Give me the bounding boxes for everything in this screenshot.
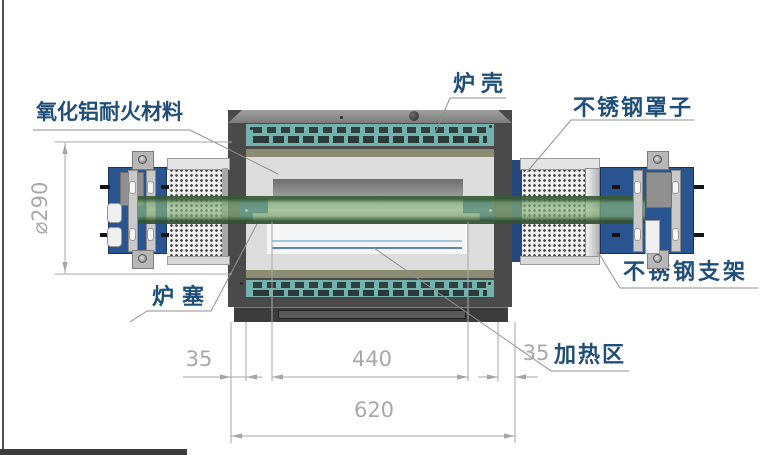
flange-piece <box>645 220 660 254</box>
clamp-slot <box>129 228 136 241</box>
label-alumina-refractory: 氧化铝耐火材料 <box>36 101 183 124</box>
furnace-diagram: 氧化铝耐火材料 炉壳 不锈钢罩子 炉塞 不锈钢支架 加热区 ⌀290 35 44… <box>0 0 760 455</box>
cover-bottom-edge <box>520 256 600 265</box>
gasket-strip-bottom <box>246 270 494 278</box>
label-furnace-shell: 炉壳 <box>453 72 509 96</box>
chamber-cavity <box>267 224 467 254</box>
dim-left-35: 35 <box>184 347 214 371</box>
base-slot <box>278 310 466 319</box>
vent-slots-row <box>253 282 487 288</box>
clamp-screw <box>653 254 662 263</box>
clamp-wedge-right <box>646 172 672 208</box>
vent-slots-row <box>253 136 487 143</box>
clamp-slot <box>129 181 136 194</box>
chamber-liner-line <box>272 247 462 249</box>
window-bottom-strip <box>0 449 187 455</box>
top-port-hole <box>409 111 419 121</box>
vent-screw-dot <box>240 282 243 285</box>
clamp-slot <box>672 228 679 241</box>
clamp-slot <box>147 181 154 194</box>
clamp-screw <box>138 155 147 164</box>
bolt-tick <box>612 233 620 237</box>
dim-right-35: 35 <box>519 341 553 365</box>
clamp-screw <box>138 254 147 263</box>
flange-piece <box>107 203 122 223</box>
bolt-tick <box>694 185 704 189</box>
cover-bottom-edge <box>167 256 230 265</box>
vent-panel-bottom <box>246 280 494 297</box>
vent-slots-row <box>253 290 487 296</box>
clamp-slot <box>672 181 679 194</box>
bolt-tick <box>161 185 169 189</box>
chamber-liner-line <box>272 240 462 242</box>
bolt-tick <box>612 185 620 189</box>
cover-top-edge <box>167 158 230 170</box>
bolt-tick <box>100 185 110 189</box>
clamp-slot <box>634 181 641 194</box>
clamp-slot <box>634 228 641 241</box>
window-left-edge <box>2 0 4 455</box>
vent-screw-dot <box>250 127 253 130</box>
top-screw-dot <box>340 116 343 119</box>
furnace-shell-top-face <box>228 110 512 123</box>
label-stainless-cover: 不锈钢罩子 <box>573 96 693 120</box>
vent-screw-dot <box>489 125 492 128</box>
dim-heating-440: 440 <box>342 347 402 371</box>
clamp-slot <box>147 228 154 241</box>
bolt-tick <box>161 233 169 237</box>
label-heating-zone: 加热区 <box>554 343 626 367</box>
vent-slots-row <box>253 127 487 133</box>
dim-overall-620: 620 <box>344 398 404 422</box>
label-furnace-plug: 炉塞 <box>152 285 212 309</box>
dim-diameter-290: ⌀290 <box>28 153 52 263</box>
clamp-screw <box>653 155 662 164</box>
furnace-tube <box>138 196 645 224</box>
label-stainless-bracket: 不锈钢支架 <box>623 260 748 284</box>
bolt-tick <box>694 233 704 237</box>
vent-panel-top <box>246 124 494 146</box>
gasket-strip-top <box>246 149 494 157</box>
vent-screw-dot <box>488 282 491 285</box>
heating-chamber-block <box>273 179 463 196</box>
flange-piece <box>107 227 122 247</box>
